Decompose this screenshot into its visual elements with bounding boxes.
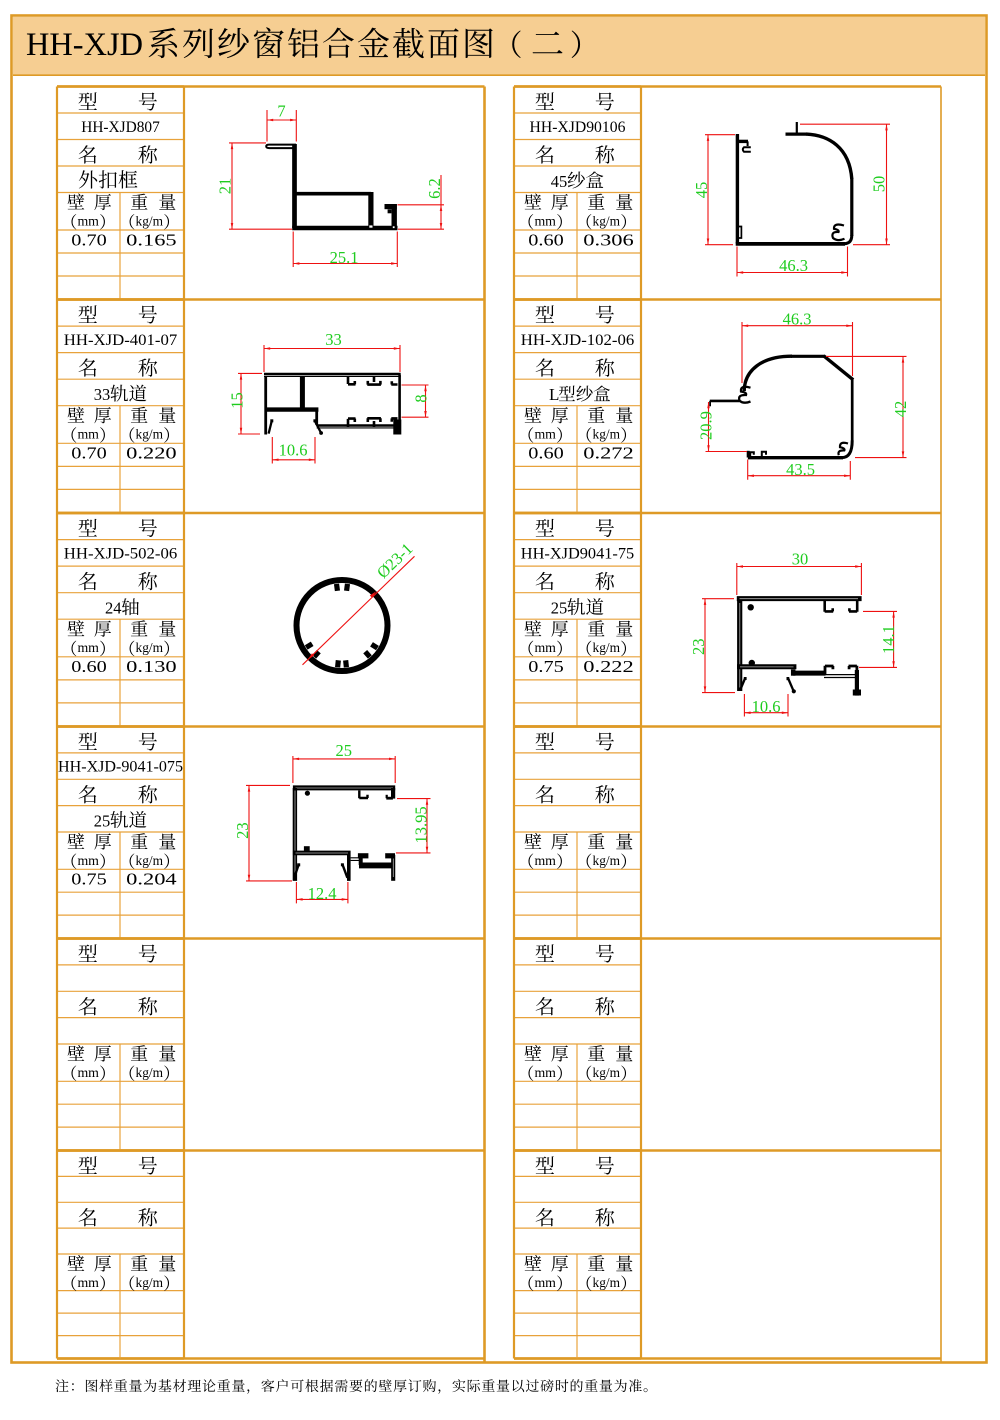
svg-text:HH-XJD-502-06: HH-XJD-502-06 xyxy=(64,545,177,562)
svg-text:12.4: 12.4 xyxy=(308,884,337,903)
svg-text:kg/m: kg/m xyxy=(593,854,621,869)
svg-text:HH-XJD-9041-075: HH-XJD-9041-075 xyxy=(58,759,183,776)
svg-text:0.306: 0.306 xyxy=(583,230,634,249)
svg-text:mm: mm xyxy=(77,428,99,443)
svg-text:14.1: 14.1 xyxy=(879,625,898,654)
svg-text:kg/m: kg/m xyxy=(136,854,164,869)
svg-text:kg/m: kg/m xyxy=(593,428,621,443)
svg-text:kg/m: kg/m xyxy=(136,215,164,230)
svg-text:46.3: 46.3 xyxy=(783,310,812,329)
svg-text:20.9: 20.9 xyxy=(697,411,716,440)
svg-text:0.222: 0.222 xyxy=(583,657,634,676)
svg-text:kg/m: kg/m xyxy=(136,1276,164,1291)
svg-text:mm: mm xyxy=(534,854,556,869)
svg-text:kg/m: kg/m xyxy=(593,215,621,230)
svg-text:mm: mm xyxy=(534,215,556,230)
svg-text:0.70: 0.70 xyxy=(71,230,107,249)
svg-text:kg/m: kg/m xyxy=(136,641,164,656)
svg-text:HH-XJD807: HH-XJD807 xyxy=(81,119,160,136)
svg-text:kg/m: kg/m xyxy=(593,1276,621,1291)
svg-text:25: 25 xyxy=(335,741,352,760)
svg-text:kg/m: kg/m xyxy=(593,641,621,656)
svg-text:mm: mm xyxy=(77,215,99,230)
svg-text:0.60: 0.60 xyxy=(528,444,564,463)
svg-text:HH-XJD9041-75: HH-XJD9041-75 xyxy=(521,545,634,562)
svg-text:HH-XJD: HH-XJD xyxy=(26,27,143,63)
svg-text:7: 7 xyxy=(277,102,285,121)
svg-text:42: 42 xyxy=(891,401,910,418)
svg-text:mm: mm xyxy=(534,1276,556,1291)
svg-text:0.272: 0.272 xyxy=(583,444,634,463)
svg-text:0.70: 0.70 xyxy=(71,444,107,463)
svg-text:mm: mm xyxy=(77,1066,99,1081)
svg-text:0.60: 0.60 xyxy=(71,657,107,676)
svg-text:0.75: 0.75 xyxy=(71,870,107,889)
svg-text:kg/m: kg/m xyxy=(136,1066,164,1081)
svg-text:kg/m: kg/m xyxy=(593,1066,621,1081)
svg-text:mm: mm xyxy=(77,854,99,869)
svg-text:43.5: 43.5 xyxy=(786,460,815,479)
svg-text:mm: mm xyxy=(534,1066,556,1081)
svg-text:45: 45 xyxy=(692,182,711,199)
svg-text:45: 45 xyxy=(551,172,568,191)
svg-text:0.130: 0.130 xyxy=(126,657,177,676)
svg-text:mm: mm xyxy=(77,641,99,656)
svg-text:25.1: 25.1 xyxy=(330,248,359,267)
svg-text:0.60: 0.60 xyxy=(528,230,564,249)
svg-text:HH-XJD-102-06: HH-XJD-102-06 xyxy=(521,332,634,349)
svg-text:46.3: 46.3 xyxy=(779,256,808,275)
svg-text:mm: mm xyxy=(534,428,556,443)
svg-text:HH-XJD-401-07: HH-XJD-401-07 xyxy=(64,332,177,349)
svg-text:33: 33 xyxy=(94,385,111,404)
svg-text:24: 24 xyxy=(105,599,122,618)
svg-text:25: 25 xyxy=(94,812,111,831)
svg-text:L: L xyxy=(549,385,559,404)
svg-text:10.6: 10.6 xyxy=(279,441,308,460)
svg-text:13.95: 13.95 xyxy=(411,806,430,843)
svg-text:25: 25 xyxy=(551,599,568,618)
svg-text:6.2: 6.2 xyxy=(425,178,444,199)
svg-text:mm: mm xyxy=(77,1276,99,1291)
svg-text:mm: mm xyxy=(534,641,556,656)
svg-text:50: 50 xyxy=(870,176,889,193)
svg-text:15: 15 xyxy=(228,392,247,409)
svg-text:23: 23 xyxy=(233,822,252,839)
svg-text:HH-XJD90106: HH-XJD90106 xyxy=(530,119,626,136)
svg-text:0.165: 0.165 xyxy=(126,230,177,249)
svg-text:10.6: 10.6 xyxy=(752,697,781,716)
svg-text:0.204: 0.204 xyxy=(126,870,177,889)
svg-text:0.75: 0.75 xyxy=(528,657,564,676)
svg-text:8: 8 xyxy=(412,394,431,402)
svg-text:kg/m: kg/m xyxy=(136,428,164,443)
svg-text:0.220: 0.220 xyxy=(126,444,177,463)
svg-text:21: 21 xyxy=(216,178,235,195)
svg-text:23: 23 xyxy=(689,638,708,655)
svg-text:33: 33 xyxy=(325,330,342,349)
svg-text:30: 30 xyxy=(792,550,809,569)
